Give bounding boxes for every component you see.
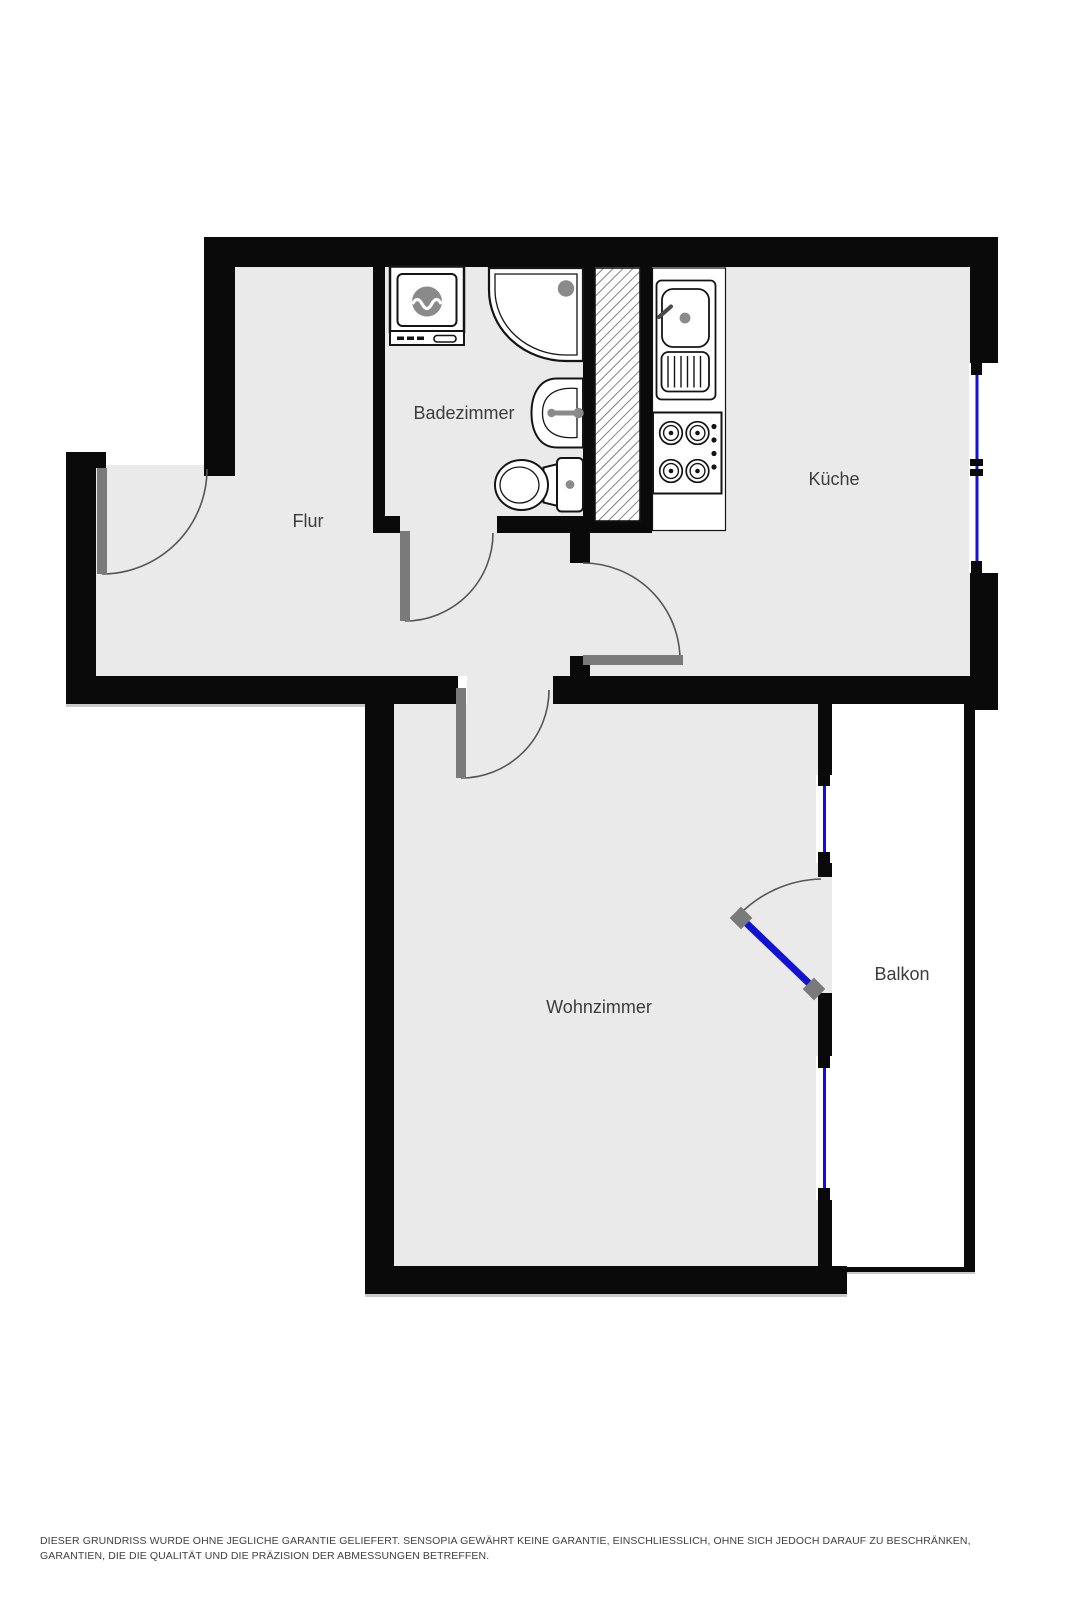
bathroom-sink-icon	[532, 379, 584, 448]
floor-plan-page: Badezimmer Flur Küche Wohnzimmer Balkon …	[0, 0, 1067, 1600]
window-glass	[823, 781, 826, 857]
room-label-kueche: Küche	[808, 469, 859, 489]
burner	[660, 460, 683, 483]
shower-drain	[558, 280, 574, 296]
window-handle	[970, 469, 983, 476]
sink-faucet-base	[573, 408, 583, 418]
room-wohnzimmer-floor	[394, 704, 818, 1266]
shaft-hatch-icon	[595, 268, 640, 521]
wall-kueche-door-top	[570, 533, 590, 563]
balkon-window-lower	[816, 1056, 832, 1200]
window-handle	[970, 459, 983, 466]
sink-drain	[680, 313, 691, 324]
wall-shaft-left	[583, 267, 595, 521]
stove-knob	[711, 437, 716, 442]
wall-balkon-1	[818, 704, 832, 777]
washing-machine-icon	[390, 267, 464, 346]
wall-balkon-4	[818, 1200, 832, 1266]
window-glass	[976, 370, 979, 567]
threshold-balkon	[818, 877, 832, 993]
washer-slot	[434, 336, 456, 343]
room-label-wohnzimmer: Wohnzimmer	[546, 997, 652, 1017]
washer-drum	[412, 287, 442, 317]
wall-kueche-bottom	[553, 676, 998, 704]
burner	[686, 460, 709, 483]
stove-knob	[711, 424, 716, 429]
threshold-wohnzimmer	[467, 676, 553, 704]
threshold-kueche	[570, 563, 590, 656]
wall-flur-bottom	[66, 676, 458, 704]
wall-wohnzimmer-left	[365, 676, 394, 1294]
window-glass	[823, 1062, 826, 1194]
wall-badezimmer-bottom-left	[373, 516, 400, 533]
door-leaf	[456, 688, 466, 778]
wall-balkon-bottom	[832, 1267, 975, 1272]
window-cap	[818, 1188, 830, 1200]
wall-badezimmer-bottom-right	[497, 516, 585, 533]
balkon-window-upper	[816, 775, 832, 863]
stove-knob	[711, 464, 716, 469]
wall-shaft-right	[640, 267, 652, 533]
window-cap	[818, 1056, 830, 1068]
stove-icon	[653, 413, 722, 494]
washer-button	[417, 337, 424, 341]
wall-top	[204, 237, 998, 267]
room-label-flur: Flur	[293, 511, 324, 531]
washer-button	[407, 337, 414, 341]
wall-right-lower	[970, 573, 998, 710]
wall-shaft-bottom	[583, 521, 652, 533]
floor-plan-svg: Badezimmer Flur Küche Wohnzimmer Balkon	[0, 0, 1067, 1600]
toilet-icon	[495, 458, 583, 512]
disclaimer-text: DIESER GRUNDRISS WURDE OHNE JEGLICHE GAR…	[40, 1534, 1035, 1564]
door-leaf	[400, 531, 410, 621]
window-cap	[818, 852, 830, 863]
shadow-line	[365, 1294, 847, 1297]
wall-wohnzimmer-bottom	[365, 1266, 847, 1294]
shadow-line	[66, 704, 365, 707]
door-leaf	[583, 655, 683, 665]
window-cap	[971, 363, 982, 375]
sink-faucet-knob	[547, 409, 555, 417]
kitchen-window	[969, 363, 984, 573]
toilet-flush-button	[566, 480, 575, 489]
room-balkon-floor	[832, 704, 964, 1267]
washer-button	[397, 337, 404, 341]
window-cap	[971, 561, 982, 573]
window-cap	[818, 775, 830, 786]
room-label-balkon: Balkon	[874, 964, 929, 984]
wall-balkon-3	[818, 993, 832, 1058]
room-flur-entry-bump-floor	[96, 465, 235, 676]
door-leaf	[97, 468, 107, 574]
threshold-badezimmer	[400, 516, 497, 533]
wall-left-upper	[204, 237, 235, 476]
room-label-badezimmer: Badezimmer	[413, 403, 514, 423]
wall-balkon-right	[964, 700, 975, 1272]
kitchen-sink-icon	[657, 281, 716, 400]
burner	[660, 422, 683, 445]
shadow-line	[832, 1272, 975, 1274]
kitchen-counter	[653, 268, 726, 531]
burner	[686, 422, 709, 445]
wall-balkon-2	[818, 863, 832, 877]
wall-badezimmer-left	[373, 267, 385, 523]
wall-entry-corner	[96, 452, 106, 468]
wall-entry-left	[66, 452, 96, 704]
wall-right-upper	[970, 237, 998, 363]
stove-knob	[711, 451, 716, 456]
